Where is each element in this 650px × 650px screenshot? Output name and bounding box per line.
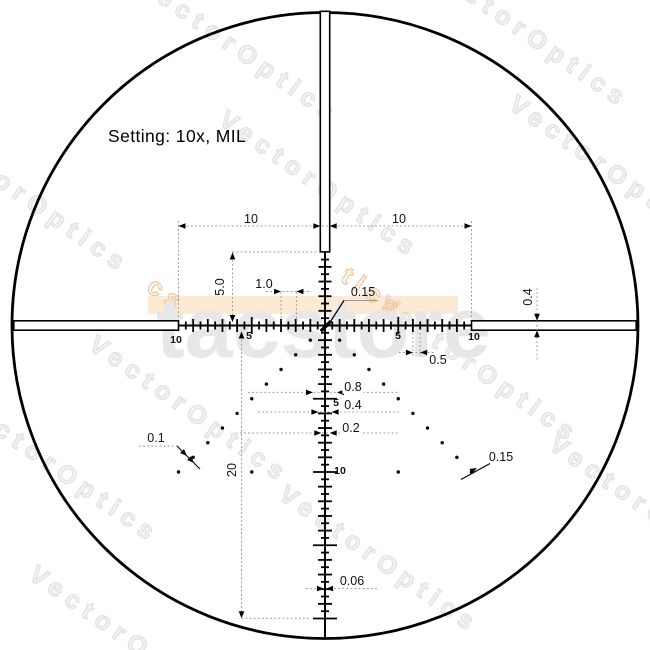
dimension-label-0-15-center: 0.15 <box>351 286 375 299</box>
dimension-label-0-8: 0.8 <box>342 381 363 394</box>
dimension-label-0-06: 0.06 <box>340 575 364 588</box>
dimension-label-5-0: 5.0 <box>214 278 227 295</box>
axis-label-right-10: 10 <box>468 332 480 343</box>
dimension-label-0-5: 0.5 <box>429 354 446 367</box>
dimension-label-top-right: 10 <box>392 213 406 226</box>
dimension-label-0-15-right: 0.15 <box>489 451 513 464</box>
reticle-diagram: VectorOpticsVectorOpticsVectorOpticsVect… <box>0 0 650 650</box>
dimension-label-20: 20 <box>226 463 239 477</box>
dimension-label-top-left: 10 <box>244 213 258 226</box>
axis-label-down-10: 10 <box>334 466 346 477</box>
dimension-label-0-4-tick: 0.4 <box>342 399 363 412</box>
dimension-label-0-1: 0.1 <box>147 432 164 445</box>
dimension-label-1-0: 1.0 <box>255 278 272 291</box>
axis-label-left-10: 10 <box>170 335 182 346</box>
axis-label-right-5: 5 <box>395 331 401 342</box>
axis-label-left-5: 5 <box>246 331 252 342</box>
reticle-graphic <box>0 0 650 650</box>
setting-label: Setting: 10x, MIL <box>108 128 246 146</box>
dimension-label-0-2: 0.2 <box>340 422 361 435</box>
axis-label-down-5: 5 <box>333 398 339 409</box>
dimension-label-0-4-post: 0.4 <box>522 288 535 305</box>
